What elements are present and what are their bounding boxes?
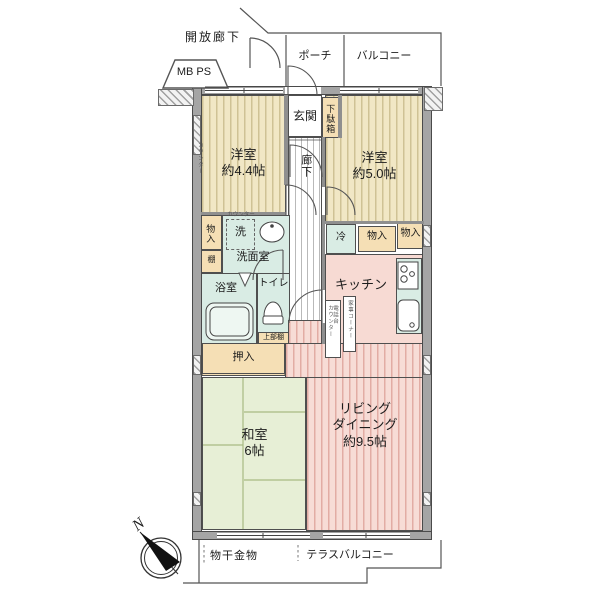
porch-outline [240,8,441,86]
shoebox-label: 下駄箱 [324,102,335,136]
storage-left-label: 物入 [204,220,215,248]
wall-right [422,86,432,540]
housework-corner-box: 家事コーナー [343,296,356,352]
washer-counter-label: カウンター [224,212,258,219]
wall-shoebox-right [338,95,342,138]
column-left-mid [193,355,201,375]
shelf-label: 棚 [201,255,222,265]
compass-n-label: N [125,511,153,539]
genkan-label: 玄関 [288,109,322,124]
living-strip [288,320,322,344]
japanese-room-label: 和室 6帖 [202,427,307,460]
western2-label: 洋室 約5.0帖 [326,150,423,183]
phone-counter-box: 電話台 カウンター [325,300,341,358]
column-right-mid2 [423,355,431,375]
open-corridor-label: 開放廊下 [182,30,244,45]
wall-counter-label: カウンター [196,140,203,176]
oshiire-label: 押入 [202,351,285,365]
wall-hall-right-upper [322,137,325,187]
column-left-low [193,492,201,506]
housework-corner-label: 家事コーナー [346,300,354,339]
storage-right-label: 物入 [397,228,424,241]
floor-plan: 電話台 カウンター 家事コーナー [0,0,600,600]
hallway-label: 廊下 [298,152,312,180]
phone-counter-label: カウンター [326,305,334,338]
column-top-left [158,89,194,106]
laundry-hardware-label: 物干金物 [206,550,262,564]
wall-under-western2 [325,221,424,224]
upper-shelf-label: 上部棚 [258,334,289,343]
fridge-label: 冷 [326,232,356,245]
window-western2 [340,87,418,94]
porch-label: ポーチ [286,50,344,64]
toilet-label: トイレ [257,278,290,291]
terrace-balcony-label: テラスバルコニー [300,549,400,563]
mbps-label: MB PS [168,66,220,80]
western1-label: 洋室 約4.4帖 [201,147,286,180]
window-living [323,532,410,539]
bath-label: 浴室 [201,282,251,296]
compass-icon [140,532,181,578]
balcony-label: バルコニー [344,50,424,64]
wall-hall-right-lower [322,215,325,290]
washroom-label: 洗面室 [222,251,284,265]
kitchen-counter [396,258,422,334]
window-western1 [205,87,283,94]
kitchen-label: キッチン [328,277,394,293]
window-japanese [217,532,310,539]
column-right-mid [423,225,431,247]
entrance-opening [285,87,321,94]
column-top-right [424,87,443,111]
column-right-low [423,492,431,506]
living-label: リビング ダイニング 約9.5帖 [307,401,423,450]
storage-mid-label: 物入 [358,231,396,244]
washer-label: 洗 [226,226,255,240]
